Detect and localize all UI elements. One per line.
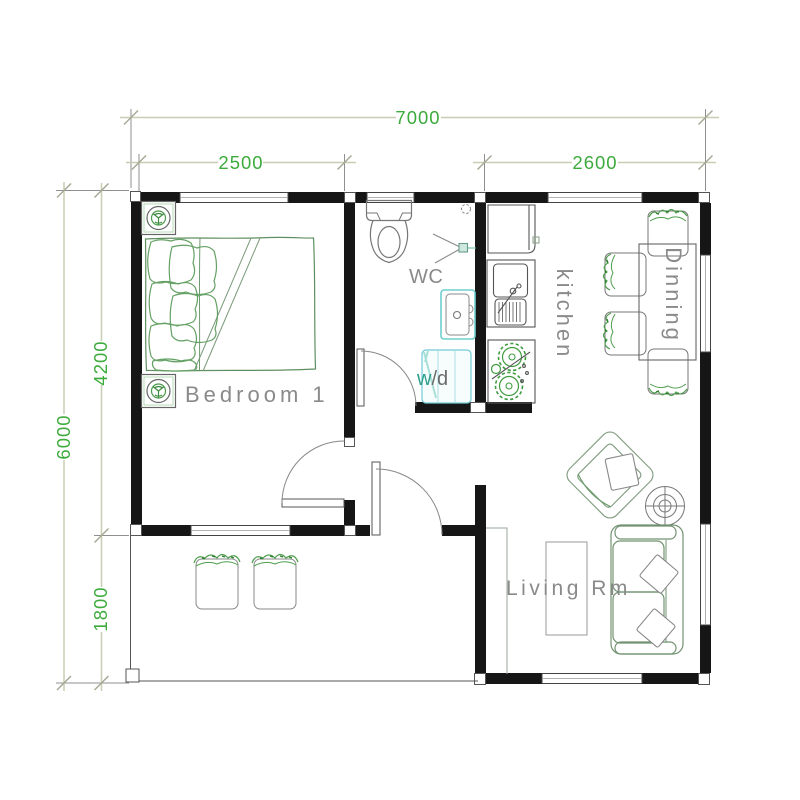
svg-text:1800: 1800: [90, 586, 111, 631]
svg-text:Living Rm: Living Rm: [506, 577, 631, 600]
svg-text:Bedroom 1: Bedroom 1: [185, 382, 329, 407]
svg-text:Dinning: Dinning: [661, 247, 686, 343]
svg-text:kitchen: kitchen: [552, 269, 577, 360]
svg-text:2500: 2500: [218, 152, 263, 173]
svg-text:4200: 4200: [90, 340, 111, 385]
svg-text:6000: 6000: [53, 414, 74, 459]
svg-text:2600: 2600: [572, 152, 617, 173]
svg-text:7000: 7000: [395, 107, 440, 128]
svg-text:w/d: w/d: [416, 368, 448, 390]
svg-text:WC: WC: [409, 266, 443, 288]
